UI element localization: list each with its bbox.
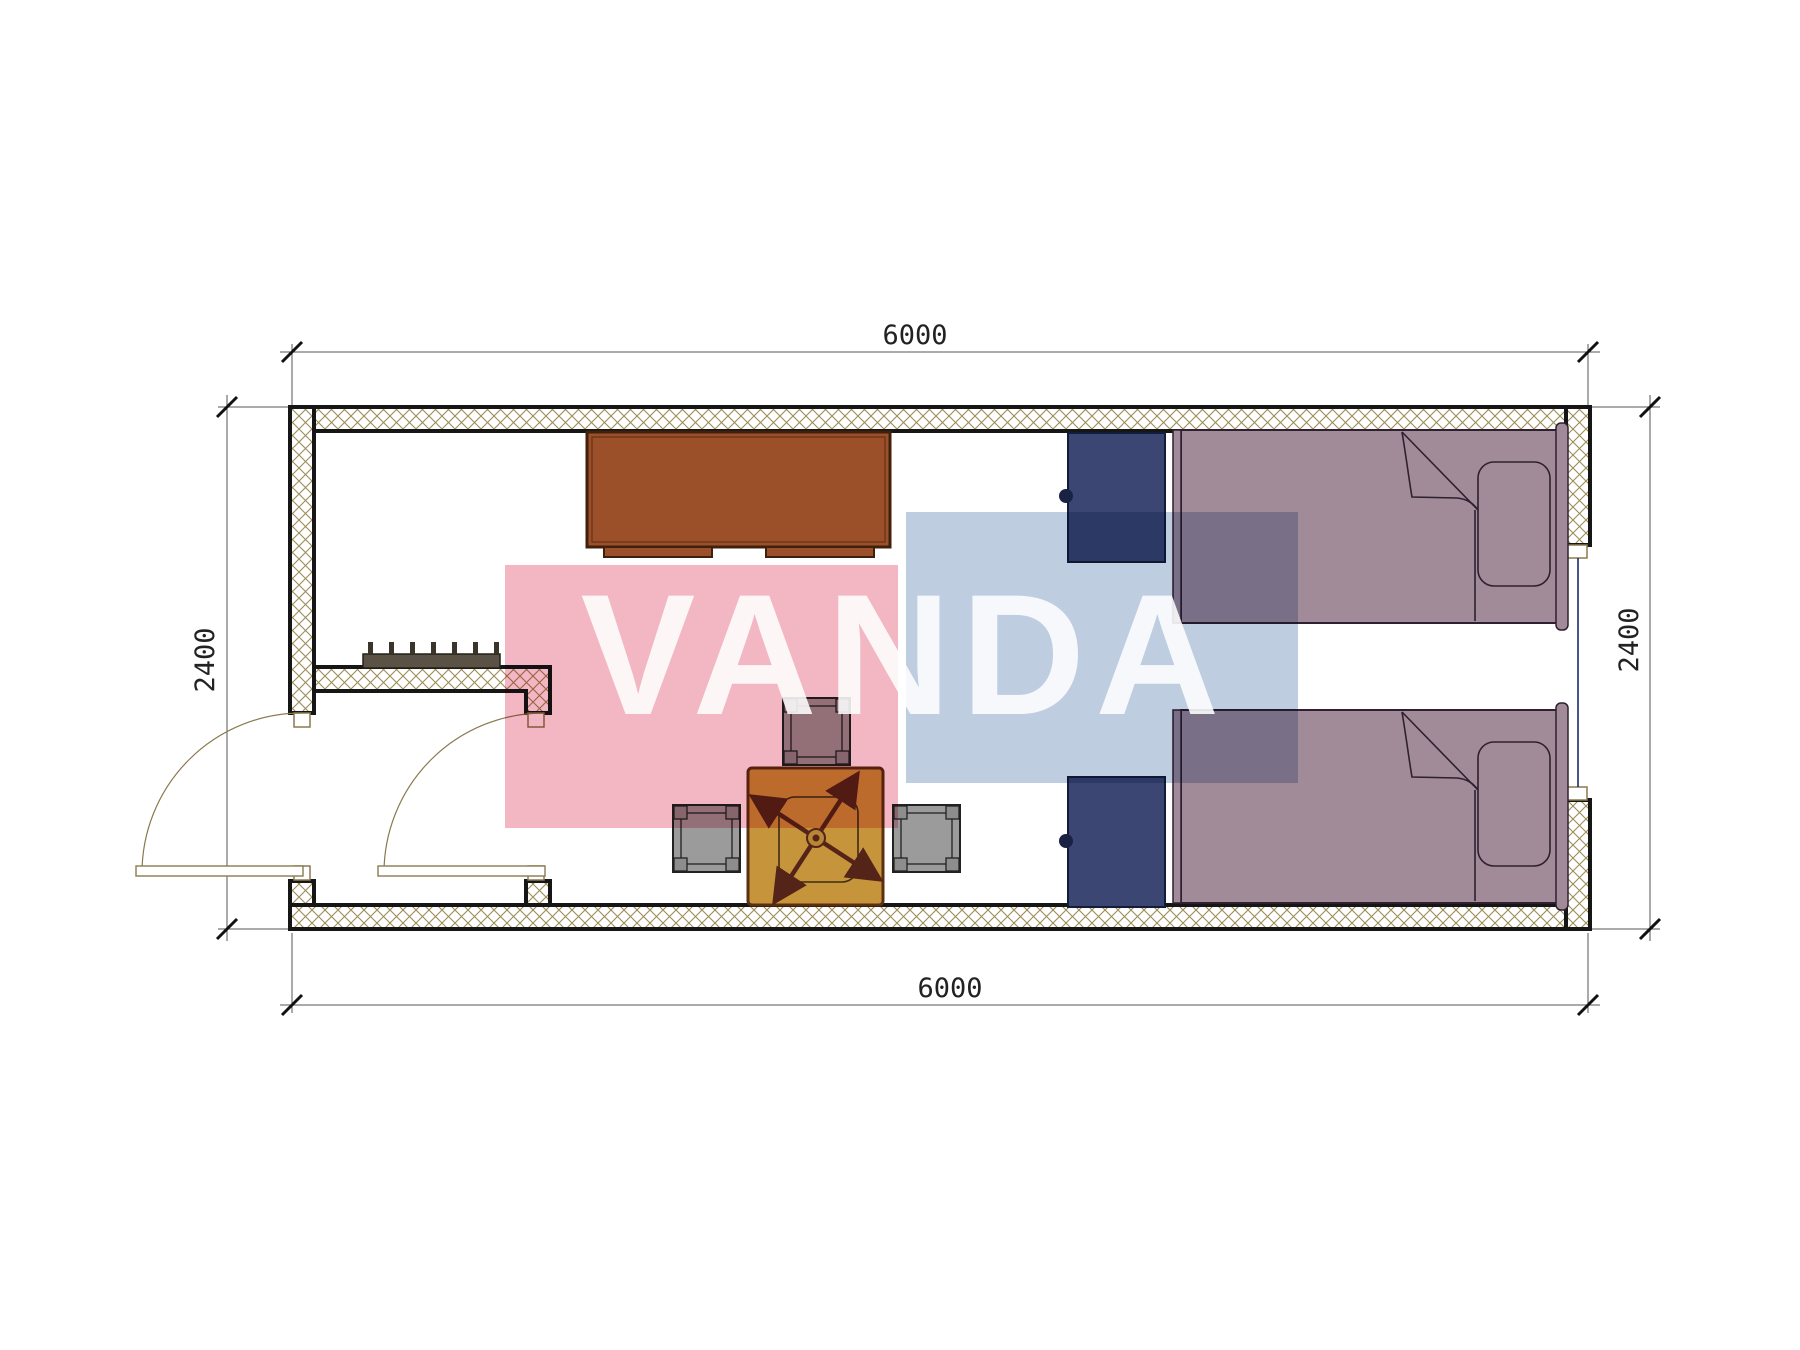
coat-rack-bar	[363, 654, 500, 668]
dimension-right: 2400	[1590, 395, 1660, 941]
desk	[587, 432, 890, 557]
watermark: VANDA	[505, 512, 1298, 828]
nightstand-2	[1059, 777, 1165, 907]
door-jamb	[294, 713, 310, 727]
right-wall-upper	[1566, 407, 1590, 545]
door-leaf	[378, 866, 545, 876]
window	[1567, 545, 1587, 800]
nightstand-knob	[1059, 834, 1073, 848]
dimension-label-bottom: 6000	[917, 973, 982, 1004]
desk-foot	[766, 547, 874, 557]
bottom-wall	[290, 905, 1590, 929]
right-wall-lower	[1566, 800, 1590, 929]
entrance-doors	[136, 713, 545, 880]
door-leaf	[136, 866, 303, 876]
door-swing-arc	[142, 713, 302, 873]
dimension-label-top: 6000	[882, 320, 947, 351]
left-wall	[290, 407, 314, 713]
watermark-text: VANDA	[581, 559, 1230, 751]
door-stub-right	[526, 881, 550, 905]
dimension-bottom: 6000	[280, 933, 1600, 1015]
dimension-top: 6000	[280, 320, 1600, 407]
desk-foot	[604, 547, 712, 557]
bed-headboard	[1556, 423, 1568, 630]
pillow	[1478, 462, 1550, 586]
nightstand-body	[1068, 777, 1165, 907]
dimension-left: 2400	[190, 395, 292, 941]
fan-hub-center	[813, 835, 820, 842]
dimension-label-left: 2400	[190, 627, 221, 692]
desk-top	[587, 432, 890, 547]
window-jamb	[1567, 545, 1587, 558]
coat-rack	[363, 642, 500, 668]
floor-plan-canvas: 6000 6000 2400 2400	[0, 0, 1800, 1350]
window-jamb	[1567, 787, 1587, 800]
nightstand-knob	[1059, 489, 1073, 503]
floor-plan-drawing: 6000 6000 2400 2400	[0, 0, 1800, 1350]
dimension-label-right: 2400	[1614, 607, 1645, 672]
stool-3	[893, 805, 960, 872]
top-wall	[290, 407, 1590, 431]
pillow	[1478, 742, 1550, 866]
door-stub-left	[290, 881, 314, 905]
coat-rack-hooks	[368, 642, 499, 654]
bed-headboard	[1556, 703, 1568, 910]
